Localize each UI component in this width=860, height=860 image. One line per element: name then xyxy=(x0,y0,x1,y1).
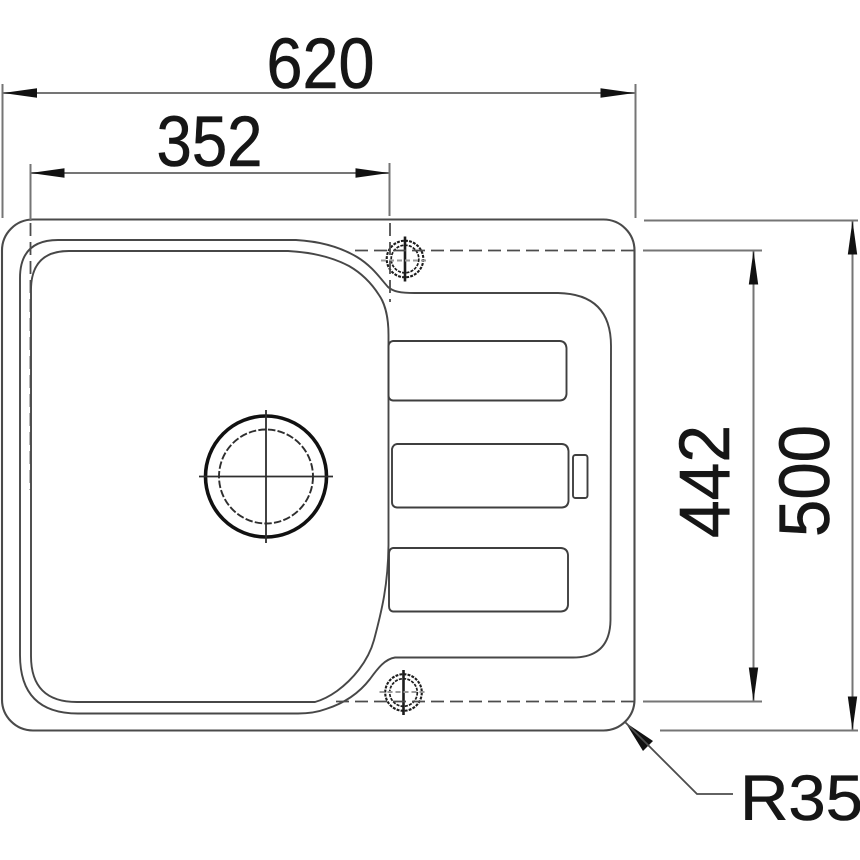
svg-text:R35: R35 xyxy=(740,762,860,834)
svg-text:442: 442 xyxy=(665,425,745,538)
svg-text:500: 500 xyxy=(765,425,845,537)
svg-text:352: 352 xyxy=(157,102,263,182)
